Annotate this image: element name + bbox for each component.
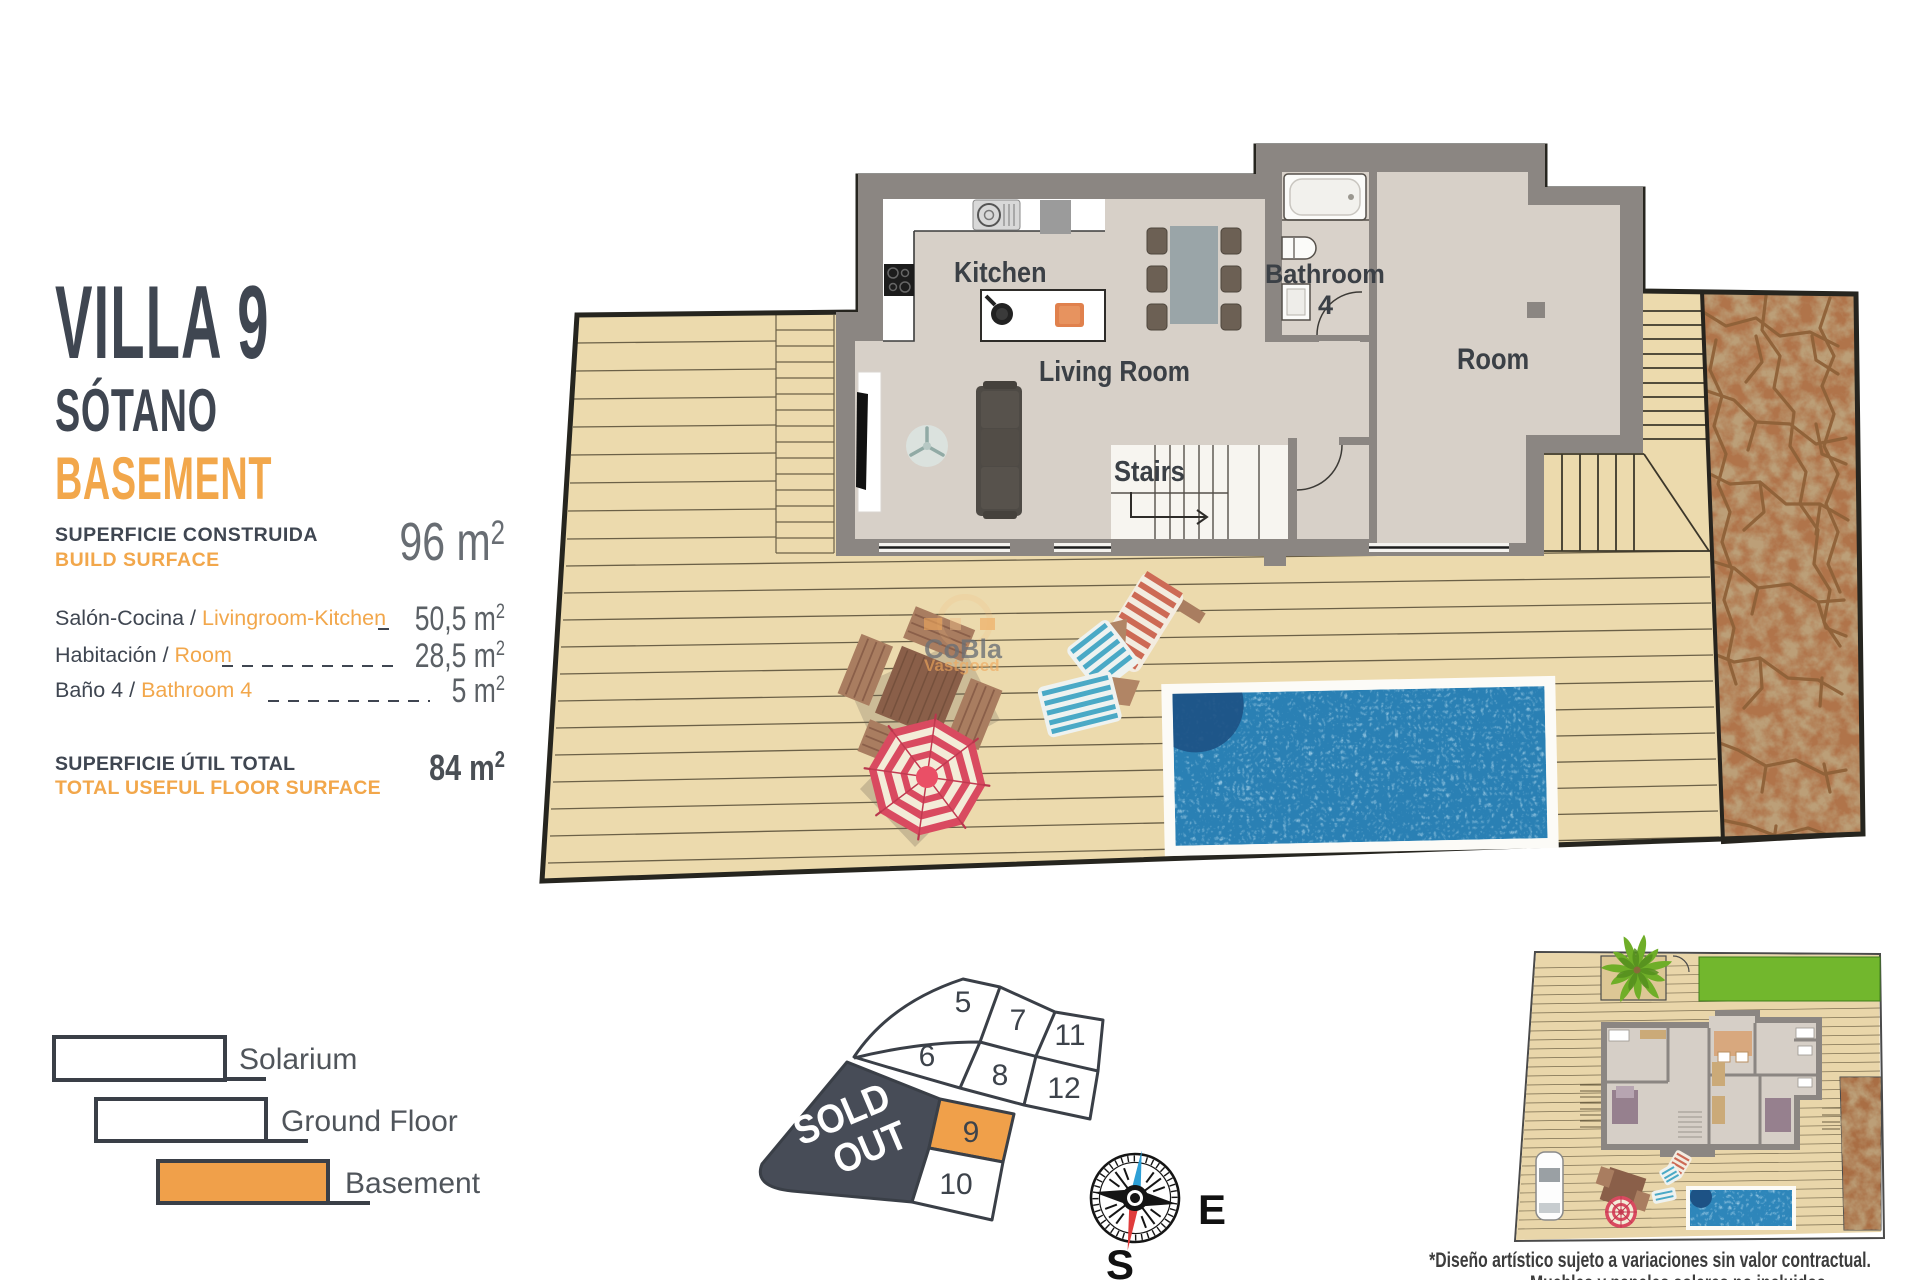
svg-text:50,5 m2: 50,5 m2 [415,599,505,638]
svg-text:Baño 4 / Bathroom 4: Baño 4 / Bathroom 4 [55,678,252,702]
svg-text:Muebles y paneles solares no i: Muebles y paneles solares no incluidos. [1530,1271,1830,1280]
svg-text:Stairs: Stairs [1114,454,1185,487]
svg-text:Room: Room [1457,342,1529,375]
svg-text:8: 8 [992,1059,1009,1092]
svg-text:BASEMENT: BASEMENT [55,445,272,512]
svg-text:SUPERFICIE CONSTRUIDA: SUPERFICIE CONSTRUIDA [55,524,318,546]
svg-text:84 m2: 84 m2 [429,747,505,788]
svg-text:SUPERFICIE ÚTIL TOTAL: SUPERFICIE ÚTIL TOTAL [55,751,295,775]
svg-text:VILLA 9: VILLA 9 [55,263,270,380]
svg-text:5: 5 [955,986,972,1019]
svg-text:9: 9 [963,1116,980,1149]
svg-text:SÓTANO: SÓTANO [55,377,218,444]
svg-text:Living Room: Living Room [1039,355,1190,387]
svg-text:E: E [1198,1186,1226,1233]
svg-text:5 m2: 5 m2 [452,671,505,710]
svg-text:Basement: Basement [345,1167,481,1200]
svg-text:28,5 m2: 28,5 m2 [415,636,505,675]
svg-text:S: S [1106,1241,1134,1280]
svg-text:96 m2: 96 m2 [399,513,505,573]
svg-text:TOTAL USEFUL FLOOR SURFACE: TOTAL USEFUL FLOOR SURFACE [55,777,381,799]
svg-text:11: 11 [1054,1019,1085,1052]
svg-text:Bathroom: Bathroom [1265,258,1385,289]
svg-text:Salón-Cocina / Livingroom-Kitc: Salón-Cocina / Livingroom-Kitchen [55,606,386,630]
svg-text:BUILD SURFACE: BUILD SURFACE [55,549,220,571]
svg-text:12: 12 [1047,1072,1080,1105]
svg-text:Habitación / Room: Habitación / Room [55,643,232,667]
svg-text:Solarium: Solarium [239,1043,357,1076]
svg-text:*Diseño artístico sujeto a var: *Diseño artístico sujeto a variaciones s… [1429,1248,1871,1272]
svg-text:Ground Floor: Ground Floor [281,1105,458,1138]
svg-text:Kitchen: Kitchen [954,255,1046,288]
svg-text:4: 4 [1318,290,1333,320]
svg-text:6: 6 [919,1040,936,1073]
svg-text:Vastgoed: Vastgoed [924,656,1000,675]
svg-text:10: 10 [939,1168,972,1201]
svg-text:7: 7 [1010,1004,1027,1037]
